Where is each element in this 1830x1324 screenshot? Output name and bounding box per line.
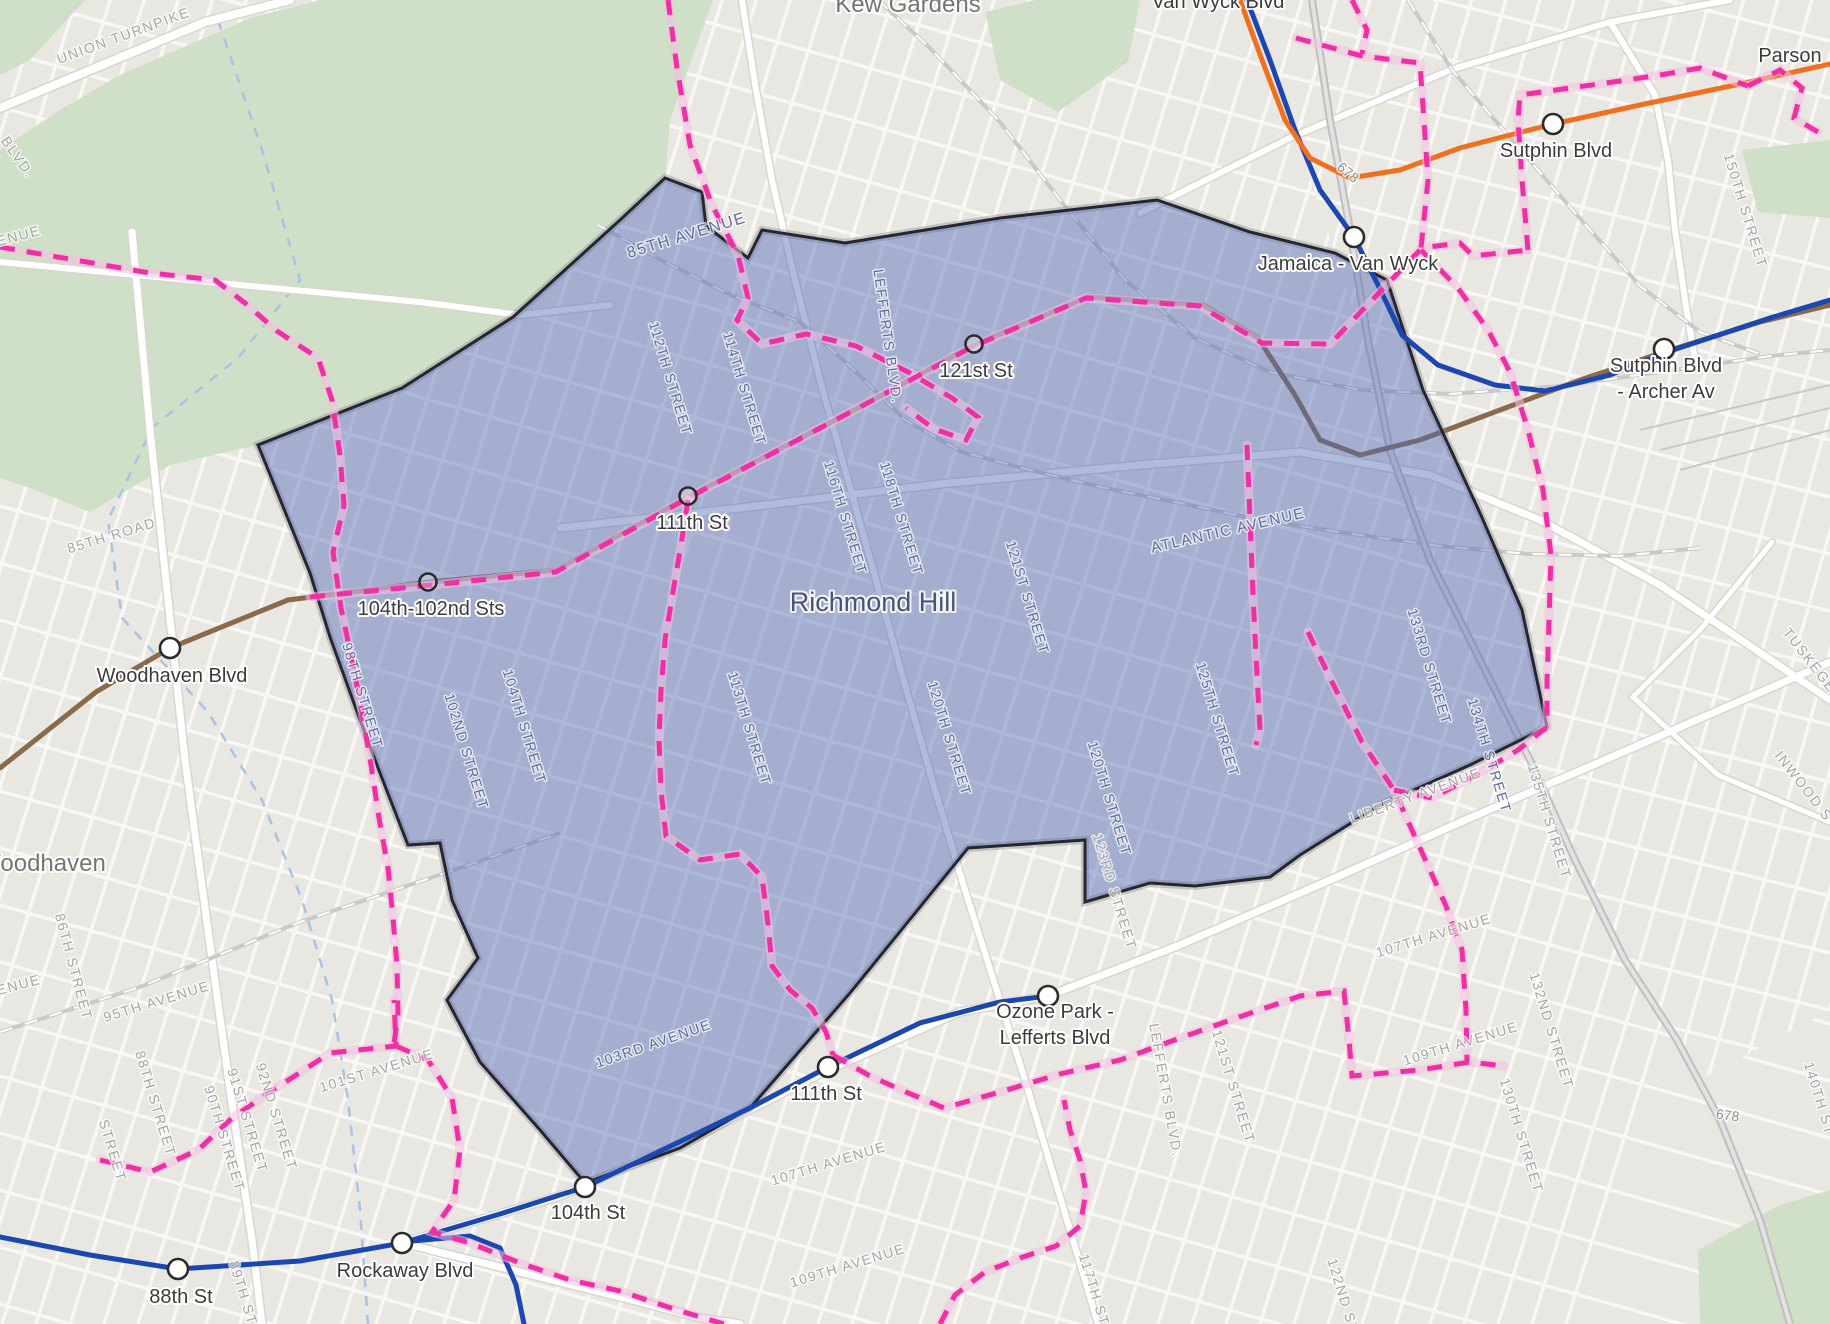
station-marker[interactable]	[966, 336, 983, 353]
station-marker[interactable]	[160, 638, 180, 658]
place-label: Parson	[1758, 45, 1821, 67]
station-label: Jamaica - Van Wyck	[1258, 253, 1440, 275]
map-canvas[interactable]: Woodhaven Blvd104th-102nd Sts111th St121…	[0, 0, 1830, 1324]
place-label: Van Wyck Blvd	[1152, 0, 1285, 13]
station-label: Woodhaven Blvd	[97, 665, 248, 687]
station-marker[interactable]	[575, 1177, 595, 1197]
station-marker[interactable]	[392, 1233, 412, 1253]
station-label: 104th St	[551, 1202, 626, 1224]
station-label: 121st St	[939, 360, 1013, 382]
place-label: Woodhaven	[0, 850, 106, 877]
station-label: Rockaway Blvd	[337, 1260, 474, 1282]
station-marker[interactable]	[680, 488, 697, 505]
place-label: Richmond Hill	[790, 587, 957, 617]
route-shield-678: 678	[1715, 1106, 1741, 1125]
station-label: 111th St	[656, 512, 728, 534]
station-label: 104th-102nd Sts	[358, 598, 505, 620]
station-marker[interactable]	[1543, 114, 1563, 134]
station-label: Sutphin Blvd	[1610, 355, 1722, 377]
station-marker[interactable]	[818, 1057, 838, 1077]
station-label: Ozone Park -	[996, 1001, 1114, 1023]
station-marker[interactable]	[1344, 227, 1364, 247]
station-label: Lefferts Blvd	[1000, 1027, 1111, 1049]
station-label: - Archer Av	[1617, 381, 1714, 403]
station-label: Sutphin Blvd	[1500, 140, 1612, 162]
station-marker[interactable]	[168, 1259, 188, 1279]
station-marker[interactable]	[420, 574, 437, 591]
station-label: 88th St	[149, 1286, 213, 1308]
station-label: 111th St	[790, 1083, 862, 1105]
place-label: Kew Gardens	[835, 0, 980, 18]
map-viewport[interactable]: Woodhaven Blvd104th-102nd Sts111th St121…	[0, 0, 1830, 1324]
